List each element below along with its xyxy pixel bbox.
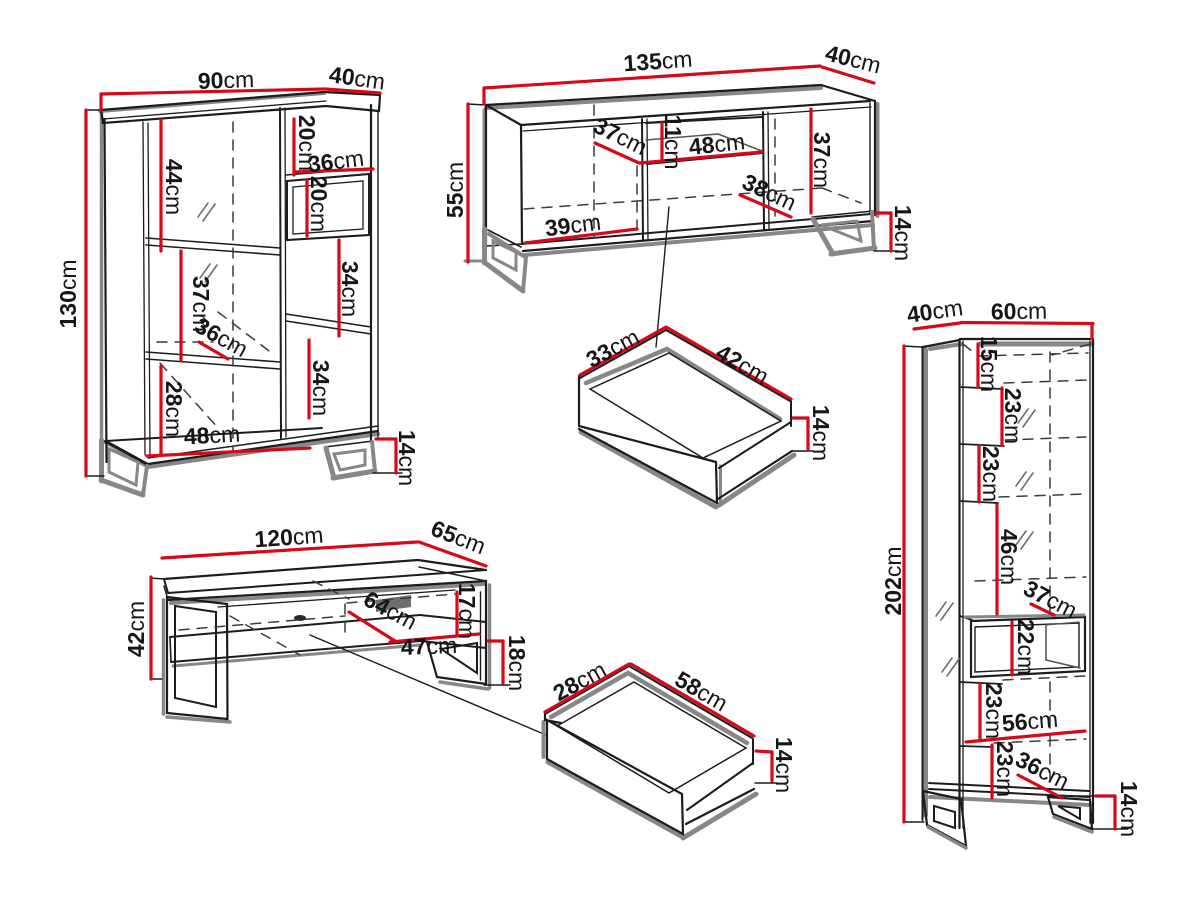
svg-text:17cm: 17cm [454,583,480,639]
svg-text:44cm: 44cm [161,159,187,215]
svg-text:56cm: 56cm [1001,706,1059,737]
svg-text:20cm: 20cm [306,176,332,232]
svg-text:55cm: 55cm [442,162,468,218]
svg-text:15cm: 15cm [976,336,1002,392]
svg-text:60cm: 60cm [991,298,1048,325]
svg-text:11cm: 11cm [660,115,686,170]
svg-text:135cm: 135cm [623,46,694,77]
svg-text:14cm: 14cm [808,405,834,461]
svg-text:22cm: 22cm [1013,619,1039,675]
svg-text:42cm: 42cm [123,601,149,657]
svg-text:14cm: 14cm [890,205,916,261]
svg-text:23cm: 23cm [1000,388,1026,444]
svg-text:18cm: 18cm [504,635,530,691]
svg-text:120cm: 120cm [254,522,325,553]
svg-text:14cm: 14cm [771,737,797,793]
svg-text:14cm: 14cm [1116,781,1142,837]
svg-text:23cm: 23cm [978,446,1004,502]
svg-text:202cm: 202cm [880,546,906,615]
svg-text:130cm: 130cm [55,259,81,328]
svg-text:37cm: 37cm [809,132,835,188]
svg-text:34cm: 34cm [337,261,363,317]
svg-text:34cm: 34cm [308,360,334,416]
svg-text:46cm: 46cm [996,529,1022,585]
svg-text:47cm: 47cm [400,632,457,660]
svg-text:14cm: 14cm [394,430,420,486]
svg-text:48cm: 48cm [183,421,241,450]
svg-text:90cm: 90cm [197,66,254,94]
